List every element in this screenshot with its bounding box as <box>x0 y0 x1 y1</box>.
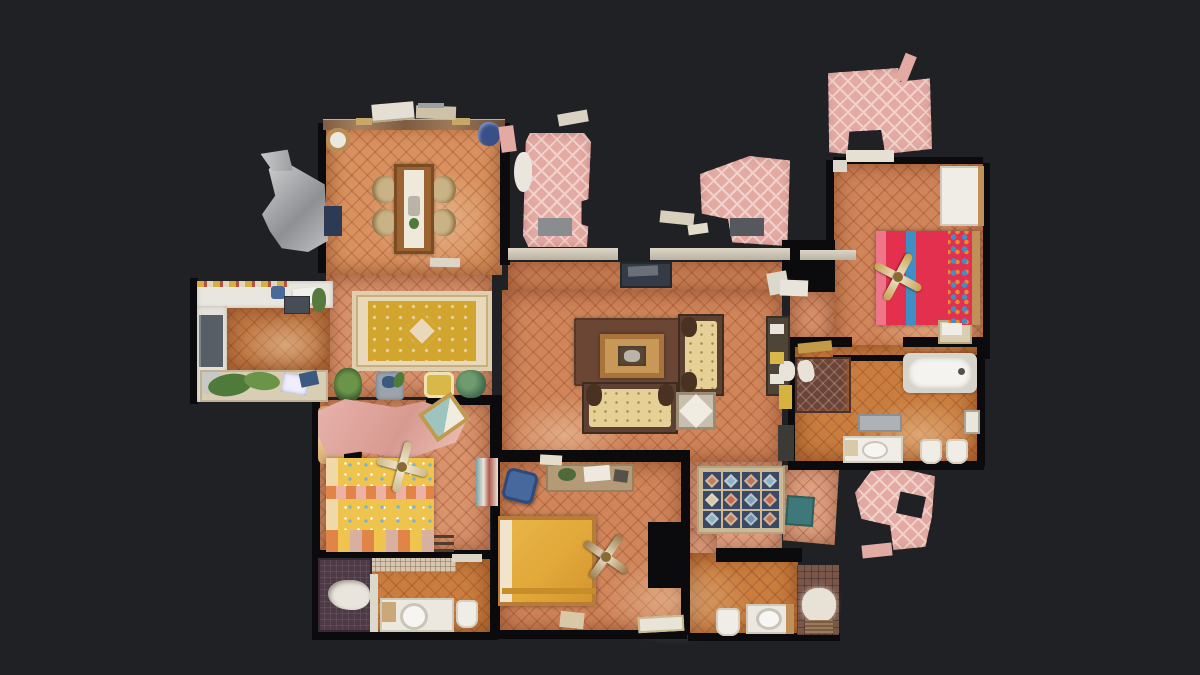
master-bedroom-right-wall <box>983 163 990 359</box>
counter-items <box>382 602 396 622</box>
wall-clock <box>326 128 350 152</box>
towel-yellow <box>779 385 792 409</box>
dining-chair <box>372 176 394 203</box>
table-centerpiece <box>408 196 420 216</box>
desk-plant <box>558 468 576 481</box>
rug-cell <box>742 472 760 489</box>
bathtub-drain <box>958 368 965 375</box>
navy-chair <box>324 206 342 236</box>
sofa-arm <box>586 384 602 406</box>
desk-papers <box>583 465 610 482</box>
door-threshold <box>430 258 460 268</box>
window-sill <box>800 250 856 260</box>
kitchen-plant <box>312 288 326 312</box>
tub-blur <box>802 588 836 622</box>
shelf-item <box>770 352 784 364</box>
sofa-arm <box>681 372 697 392</box>
yellow-bed-check-band <box>326 486 434 499</box>
rug-cell <box>762 491 780 508</box>
master-bed-frame <box>972 231 980 325</box>
scan-fragment <box>498 125 516 153</box>
sofa-arm <box>681 317 697 337</box>
scan-fragment <box>371 101 414 123</box>
master-bed-quilt-pattern <box>948 231 972 325</box>
wardrobe-strip <box>476 458 498 506</box>
gold-bedroom-right-wall <box>681 450 690 526</box>
rug-cell <box>742 511 760 528</box>
dining-chair <box>372 209 394 236</box>
dining-top-wall-cap <box>323 119 505 130</box>
shelf-item <box>770 374 784 384</box>
rug-medallion <box>705 512 719 526</box>
shower-tray <box>328 580 370 610</box>
counter-items <box>845 440 858 456</box>
rug-cell <box>762 511 780 528</box>
rug-medallion <box>705 493 719 507</box>
potted-plant <box>334 368 362 402</box>
rug-medallion <box>724 493 738 507</box>
shelf-item <box>770 324 784 334</box>
wall-items-dark <box>778 425 794 461</box>
teal-mat <box>785 495 815 527</box>
dining-chair <box>434 209 456 236</box>
rug-medallion <box>724 474 738 488</box>
scan-fragment <box>659 210 694 225</box>
scan-fragment <box>557 109 589 126</box>
rug-medallion <box>763 493 777 507</box>
kitchen-floor <box>225 306 330 372</box>
hall-bench <box>780 280 809 297</box>
terrace-patch <box>826 68 932 154</box>
rug-medallion <box>724 512 738 526</box>
partition <box>370 574 378 632</box>
bench <box>638 615 685 633</box>
yellow-rug <box>352 291 492 371</box>
round-basin <box>756 608 782 630</box>
rug-medallion <box>744 474 758 488</box>
kitchen-pot <box>271 286 285 299</box>
window-sill <box>508 248 618 260</box>
table-plant <box>409 218 419 229</box>
tv-console-items <box>628 265 658 277</box>
nightstand-top <box>942 323 962 335</box>
rug-medallion <box>763 474 777 488</box>
gold-bed-fold <box>502 588 596 594</box>
rug-cell <box>703 472 721 489</box>
sink-basin <box>862 441 888 459</box>
rug-cell <box>703 491 721 508</box>
middle-bathroom-top-wall <box>716 548 802 562</box>
window-sill <box>650 248 790 260</box>
toilet <box>456 600 478 628</box>
ornate-rug-grid <box>697 466 785 534</box>
rug-cell <box>742 491 760 508</box>
scan-fragment <box>833 160 847 172</box>
floorplan-viewport[interactable] <box>0 0 1200 675</box>
rug-medallion <box>744 493 758 507</box>
terrace-stem <box>895 53 917 83</box>
rug-cell <box>723 511 741 528</box>
toilet <box>716 608 740 636</box>
rug-cell <box>762 472 780 489</box>
bathroom-window <box>964 410 980 434</box>
wardrobe <box>940 166 984 226</box>
wall-trim <box>356 118 372 125</box>
floor-items <box>559 611 585 629</box>
bathroom-mirror <box>858 414 902 432</box>
door-threshold <box>452 554 482 562</box>
kitchen-fridge <box>199 315 223 367</box>
main-bathroom-right-wall <box>977 345 985 467</box>
rug-medallion <box>705 474 719 488</box>
scan-blob-tail <box>861 542 892 558</box>
toilet <box>920 439 942 464</box>
terrace-doormat <box>538 218 572 236</box>
master-bedroom-left-wall <box>826 160 834 242</box>
bidet <box>946 439 968 464</box>
scan-fragment <box>687 223 708 236</box>
left-bathroom-side-walls <box>490 557 498 635</box>
rug-medallion <box>763 512 777 526</box>
marble-plant <box>456 370 486 398</box>
scan-fragment <box>514 152 532 192</box>
terrace-doormat <box>730 218 764 236</box>
wall-papers <box>540 454 562 465</box>
dining-chair <box>434 176 456 203</box>
rug-cell <box>723 472 741 489</box>
window-sill <box>846 150 894 162</box>
vanity-wood-edge <box>786 604 794 634</box>
sofa-arm <box>658 384 674 406</box>
basket <box>805 620 833 633</box>
master-bed-pillow-edge <box>876 231 886 325</box>
kitchen-stove <box>284 296 310 314</box>
round-basin <box>400 603 428 630</box>
gold-bedroom-top-wall <box>497 450 687 462</box>
desk-items-dark <box>613 469 629 483</box>
rug-cell <box>703 511 721 528</box>
scan-fragment <box>418 103 444 108</box>
yellow-bed-foot-band <box>326 530 434 552</box>
rug-cell <box>723 491 741 508</box>
rug-medallion <box>744 512 758 526</box>
left-bathroom-bottom-wall <box>312 632 498 640</box>
tray-items <box>624 350 640 362</box>
